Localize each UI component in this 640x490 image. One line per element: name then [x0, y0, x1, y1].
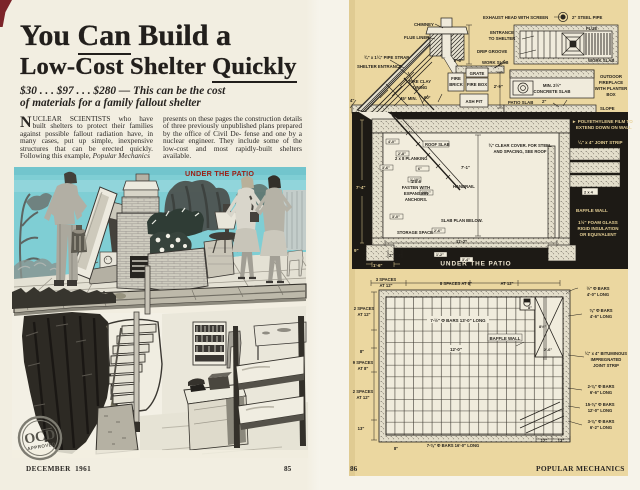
svg-text:4'-0": 4'-0": [388, 140, 396, 144]
svg-text:3'-6": 3'-6": [382, 166, 390, 170]
svg-text:1'-2": 1'-2": [436, 253, 444, 257]
svg-text:JOINT STRIP: JOINT STRIP: [593, 363, 619, 368]
svg-text:3'-0": 3'-0": [392, 215, 400, 219]
svg-text:PATIO SLAB: PATIO SLAB: [508, 100, 533, 105]
svg-text:3 SPACES: 3 SPACES: [376, 277, 397, 282]
svg-text:5'-6": 5'-6": [454, 58, 463, 63]
svg-text:8 SPACES AT 8": 8 SPACES AT 8": [440, 281, 472, 286]
svg-text:FIRE CLAY: FIRE CLAY: [409, 79, 431, 84]
svg-text:2 x 4: 2 x 4: [411, 179, 421, 184]
svg-text:ROOF SLAB: ROOF SLAB: [425, 142, 450, 147]
svg-text:WITH PLANTER: WITH PLANTER: [595, 86, 628, 91]
svg-text:7'-1": 7'-1": [461, 165, 470, 170]
svg-text:9": 9": [354, 248, 359, 253]
svg-text:6'-6" LONG: 6'-6" LONG: [590, 390, 612, 395]
svg-text:12": 12": [541, 438, 548, 443]
svg-text:2": 2": [542, 99, 546, 104]
svg-text:13": 13": [558, 438, 565, 443]
svg-text:IMPREGNATED: IMPREGNATED: [591, 357, 622, 362]
svg-text:13": 13": [358, 426, 365, 431]
svg-text:OUTDOOR: OUTDOOR: [600, 74, 623, 79]
svg-text:BAFFLE WALL: BAFFLE WALL: [490, 336, 521, 341]
svg-text:45° MIN.: 45° MIN.: [400, 96, 417, 101]
svg-text:BAFFLE WALL: BAFFLE WALL: [576, 208, 608, 213]
svg-text:ENTRANCE: ENTRANCE: [490, 30, 514, 35]
svg-text:1½" FOAM GLASS: 1½" FOAM GLASS: [578, 219, 618, 225]
svg-text:7-½" Φ BARS 13'-0" LONG: 7-½" Φ BARS 13'-0" LONG: [430, 318, 486, 323]
svg-text:9 SPACES: 9 SPACES: [353, 360, 374, 365]
svg-text:GRATE: GRATE: [470, 71, 485, 76]
svg-text:► POLYETHYLENE FILM TO: ► POLYETHYLENE FILM TO: [572, 119, 633, 124]
svg-text:FLUE: FLUE: [586, 26, 597, 31]
svg-text:¼" x 4" BITUMINOUS: ¼" x 4" BITUMINOUS: [585, 351, 627, 356]
svg-text:LINING: LINING: [413, 85, 428, 90]
svg-text:EXHAUST HEAD WITH SCREEN: EXHAUST HEAD WITH SCREEN: [483, 15, 548, 20]
svg-text:DRIP GROOVE: DRIP GROOVE: [477, 49, 507, 54]
svg-text:8½": 8½": [539, 324, 547, 329]
svg-text:AND SPACING, SEE ROOF: AND SPACING, SEE ROOF: [494, 149, 547, 154]
svg-text:½" Φ BARS: ½" Φ BARS: [586, 286, 609, 291]
svg-text:3-⅜" Φ BARS: 3-⅜" Φ BARS: [588, 419, 615, 424]
svg-text:3": 3": [398, 253, 402, 258]
svg-text:FASTEN WITH: FASTEN WITH: [402, 185, 430, 190]
svg-text:2": 2": [389, 253, 393, 258]
svg-text:SLAB PLAN BELOW.: SLAB PLAN BELOW.: [441, 218, 483, 223]
svg-text:EXTEND DOWN ON WALL: EXTEND DOWN ON WALL: [576, 125, 632, 130]
svg-text:EXPANSION: EXPANSION: [404, 191, 428, 196]
svg-text:SHELTER ENTRANCE: SHELTER ENTRANCE: [357, 64, 402, 69]
svg-text:HANDRAIL: HANDRAIL: [453, 184, 475, 189]
svg-text:¼" x 4" JOINT STRIP: ¼" x 4" JOINT STRIP: [578, 139, 623, 145]
svg-text:AT 12": AT 12": [379, 283, 392, 288]
svg-text:8": 8": [360, 349, 364, 354]
svg-text:CONCRETE SLAB: CONCRETE SLAB: [533, 89, 570, 94]
svg-text:8": 8": [394, 446, 398, 451]
svg-text:2-⅜" Φ BARS: 2-⅜" Φ BARS: [588, 384, 615, 389]
svg-text:BOX: BOX: [606, 92, 615, 97]
svg-text:2'-9": 2'-9": [494, 84, 503, 89]
svg-text:¾" CLEAR COVER. FOR STEEL: ¾" CLEAR COVER. FOR STEEL: [489, 143, 552, 148]
svg-text:FLUE LINER: FLUE LINER: [404, 35, 430, 40]
svg-text:AT 8": AT 8": [358, 366, 369, 371]
svg-text:12'-0" LONG: 12'-0" LONG: [588, 408, 613, 413]
svg-text:OR EQUIVALENT: OR EQUIVALENT: [580, 232, 617, 237]
svg-text:ANCHORS.: ANCHORS.: [405, 197, 427, 202]
svg-text:⅜" Φ BARS: ⅜" Φ BARS: [589, 308, 612, 313]
svg-text:UNDER THE PATIO: UNDER THE PATIO: [440, 261, 511, 268]
svg-text:WORK SLAB: WORK SLAB: [482, 60, 509, 65]
svg-text:RIGID INSULATION: RIGID INSULATION: [578, 226, 619, 231]
svg-text:86: 86: [350, 465, 358, 473]
svg-text:¾" x 1¼" PIPE STRAP: ¾" x 1¼" PIPE STRAP: [364, 55, 409, 60]
svg-text:BRICK: BRICK: [449, 82, 464, 87]
svg-text:AT 12": AT 12": [356, 395, 369, 400]
svg-text:2" STEEL PIPE: 2" STEEL PIPE: [572, 15, 603, 20]
svg-text:4'-0" LONG: 4'-0" LONG: [587, 292, 609, 297]
svg-text:7-⅜" Φ BARS 16'-0" LONG: 7-⅜" Φ BARS 16'-0" LONG: [427, 443, 480, 448]
svg-text:2 x 4: 2 x 4: [584, 190, 594, 195]
svg-text:2 SPACES: 2 SPACES: [354, 306, 375, 311]
svg-text:TO SHELTER: TO SHELTER: [489, 36, 517, 41]
svg-text:UNDER THE PATIO: UNDER THE PATIO: [185, 169, 254, 178]
svg-text:FIREPLACE: FIREPLACE: [599, 80, 623, 85]
svg-text:8": 8": [528, 305, 532, 310]
svg-text:STORAGE SPACE: STORAGE SPACE: [397, 230, 433, 235]
svg-text:MIN. 2½": MIN. 2½": [543, 83, 561, 88]
svg-text:2'-6": 2'-6": [544, 347, 553, 352]
svg-text:60°: 60°: [424, 95, 431, 100]
svg-text:4": 4": [350, 98, 354, 103]
svg-text:1'-6": 1'-6": [373, 263, 382, 268]
svg-text:12'-0": 12'-0": [450, 347, 462, 352]
svg-text:ASH PIT: ASH PIT: [466, 99, 483, 104]
svg-text:7'-4": 7'-4": [356, 185, 365, 190]
svg-text:11'-2": 11'-2": [456, 239, 467, 244]
svg-text:POPULAR MECHANICS: POPULAR MECHANICS: [536, 464, 625, 473]
svg-text:FIRE: FIRE: [451, 76, 461, 81]
svg-text:CHIMNEY: CHIMNEY: [414, 22, 434, 27]
svg-text:6": 6": [418, 167, 422, 171]
svg-text:2 SPACES: 2 SPACES: [353, 389, 374, 394]
svg-text:FIRE BOX: FIRE BOX: [467, 82, 487, 87]
svg-text:WORK SLAB: WORK SLAB: [588, 58, 615, 63]
svg-text:6'-2" LONG: 6'-2" LONG: [590, 425, 612, 430]
svg-text:AT 12": AT 12": [500, 281, 513, 286]
svg-text:4'-6" LONG: 4'-6" LONG: [590, 314, 612, 319]
svg-text:2 x 8 PLANKING: 2 x 8 PLANKING: [395, 156, 427, 161]
svg-text:15-⅜" Φ BARS: 15-⅜" Φ BARS: [585, 402, 614, 407]
svg-text:SLOPE: SLOPE: [600, 106, 615, 111]
svg-text:AT 12": AT 12": [357, 312, 370, 317]
svg-text:2'-6": 2'-6": [434, 229, 442, 233]
